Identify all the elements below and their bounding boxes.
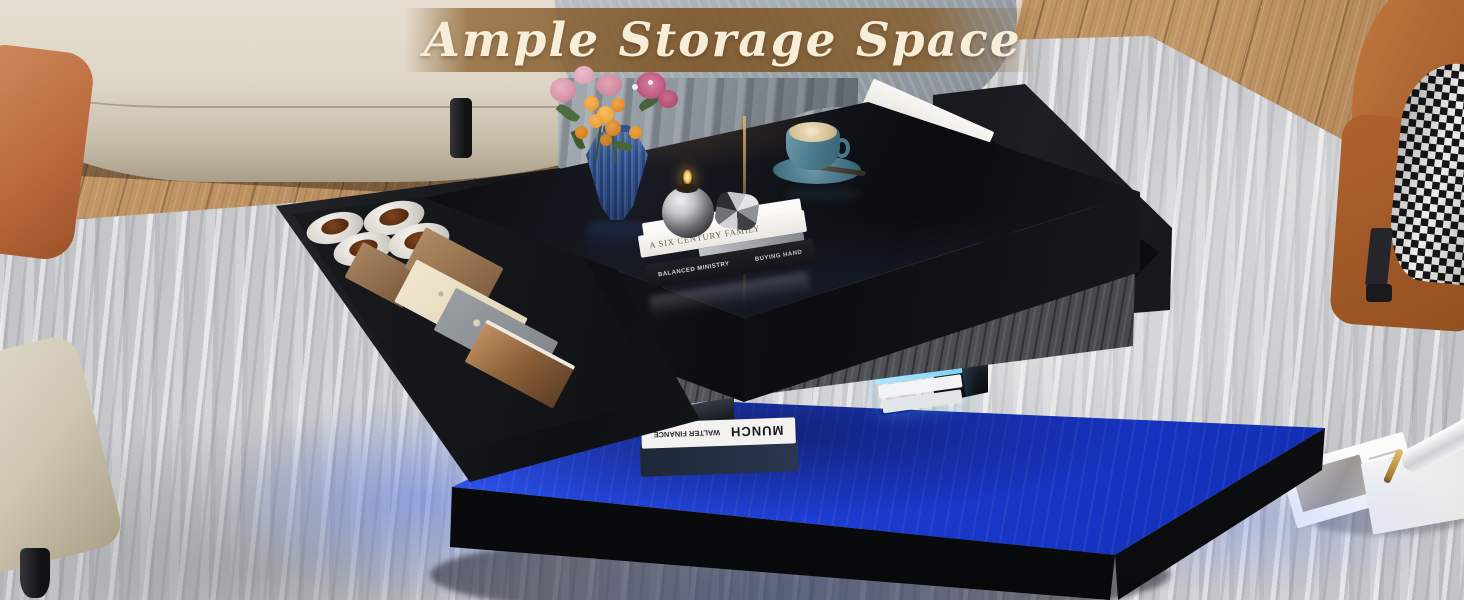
pink-rose <box>596 74 622 96</box>
black-book-title: BALANCED MINISTRY <box>658 261 730 278</box>
geometric-ball <box>714 190 761 231</box>
orange-pompom <box>629 126 642 139</box>
flower-leaf <box>613 139 633 153</box>
flower-arrangement <box>540 56 690 168</box>
white-sprig <box>648 80 653 85</box>
sphere-candle-holder <box>662 186 714 238</box>
candle-cup <box>676 184 698 193</box>
pink-rose <box>574 66 594 84</box>
orange-pompom <box>621 112 635 126</box>
orange-pompom <box>584 96 599 111</box>
magenta-mum <box>658 90 678 108</box>
orange-pompom <box>600 134 612 146</box>
base-book-title: MUNCH <box>730 423 784 440</box>
product-photo-scene: Ample Storage Space ROBUSTA Robusta coff… <box>0 0 1464 600</box>
pink-rose <box>550 78 576 102</box>
orange-pompom <box>611 98 625 112</box>
flower-leaf <box>556 101 581 124</box>
base-book-subtitle: WALTER FINANCE <box>653 428 720 439</box>
orange-pompom <box>575 126 588 139</box>
latte-art-swirl <box>801 127 823 136</box>
orange-pompom <box>589 114 603 128</box>
white-sprig <box>632 84 638 90</box>
black-book-author: BUYING HAND <box>755 250 803 263</box>
